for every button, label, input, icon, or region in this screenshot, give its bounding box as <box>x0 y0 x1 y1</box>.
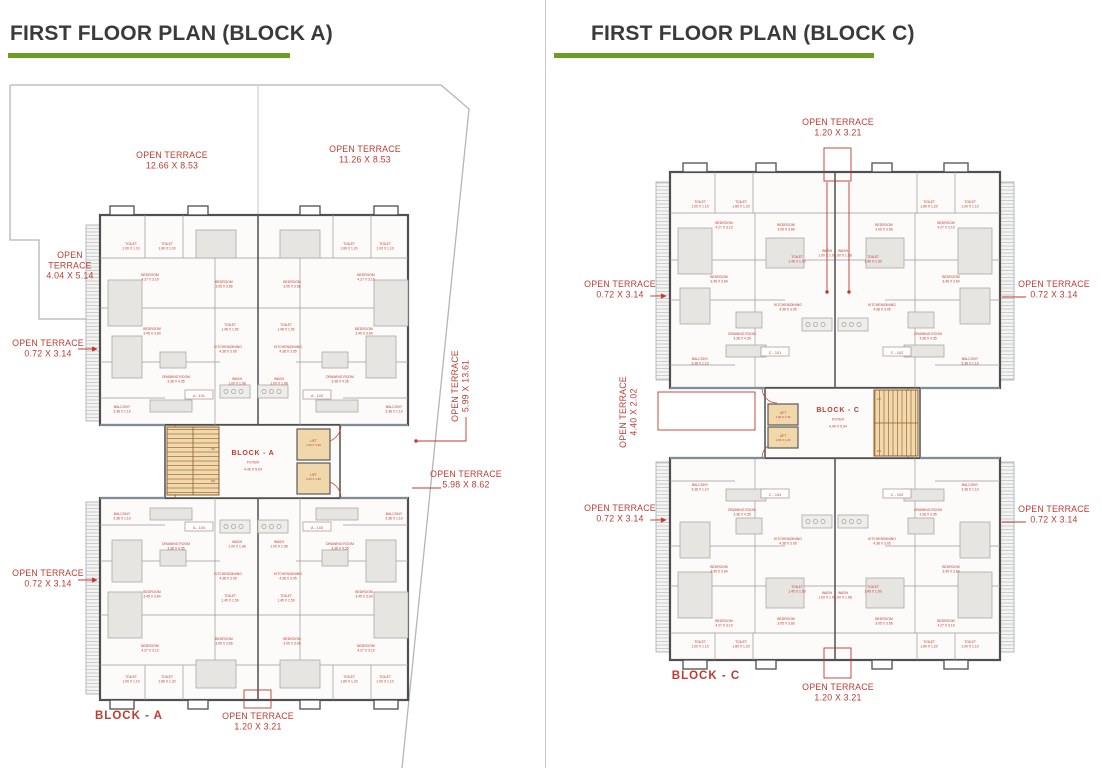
room-label: BEDROOM3.05 X 3.66 <box>215 637 233 645</box>
open-terrace-label: OPEN TERRACE0.72 X 3.14 <box>1018 279 1090 299</box>
open-terrace-label: OPEN TERRACE0.72 X 3.14 <box>12 338 84 358</box>
unit-number: C - 101 <box>769 351 781 355</box>
unit-number: C - 102 <box>891 351 903 355</box>
room-label: BEDROOM3.45 X 3.64 <box>942 565 960 573</box>
room-label: BEDROOM3.45 X 3.64 <box>355 590 373 598</box>
outer-walls <box>100 215 408 700</box>
room-label: BEDROOM3.45 X 3.64 <box>942 275 960 283</box>
open-terrace-label: OPEN TERRACE4.40 X 2.02 <box>618 376 638 448</box>
stair-direction-label: UP <box>877 397 881 401</box>
open-terrace-label: OPEN TERRACE0.72 X 3.14 <box>584 503 656 523</box>
stair-direction-label: DN <box>211 479 215 483</box>
room-label: BEDROOM3.05 X 3.66 <box>215 280 233 288</box>
open-terrace-label: OPEN TERRACE0.72 X 3.14 <box>584 279 656 299</box>
block-label: BLOCK - C <box>672 670 740 682</box>
room-label: BEDROOM3.45 X 3.64 <box>710 275 728 283</box>
terrace-hatch <box>86 225 100 694</box>
room-label: BEDROOM4.27 X 3.19 <box>357 644 375 652</box>
room-label: BALCONY3.38 X 1.10 <box>961 483 979 491</box>
room-label: BEDROOM3.05 X 3.66 <box>283 280 301 288</box>
room-label: BEDROOM4.27 X 3.19 <box>715 619 733 627</box>
open-terrace-label: OPEN TERRACE1.20 X 3.21 <box>802 682 874 702</box>
room-label: BEDROOM3.45 X 3.64 <box>143 590 161 598</box>
room-label: BALCONY3.38 X 1.10 <box>385 512 403 520</box>
open-terrace-label: OPEN TERRACE0.72 X 3.14 <box>12 568 84 588</box>
terrace-outline <box>658 392 755 430</box>
unit-number: C - 104 <box>769 493 781 497</box>
open-terrace-label: OPEN TERRACE12.66 X 8.53 <box>136 150 208 170</box>
leader-dot <box>414 439 417 442</box>
open-terrace-label: OPEN TERRACE1.20 X 3.21 <box>222 711 294 731</box>
unit-number: A - 104 <box>193 526 205 530</box>
room-label: BALCONY3.38 X 1.10 <box>385 405 403 413</box>
room-label: BEDROOM3.45 X 3.64 <box>710 565 728 573</box>
room-label: BEDROOM4.27 X 3.19 <box>937 221 955 229</box>
open-terrace-label: OPEN TERRACE0.72 X 3.14 <box>1018 504 1090 524</box>
room-label: BEDROOM3.05 X 3.66 <box>875 223 893 231</box>
leader-dot <box>847 290 850 293</box>
room-label: BEDROOM3.05 X 3.66 <box>777 617 795 625</box>
room-label: BEDROOM4.27 X 3.19 <box>141 273 159 281</box>
room-label: BEDROOM3.45 X 3.64 <box>143 327 161 335</box>
open-terrace-label: OPEN TERRACE11.26 X 8.53 <box>329 144 401 164</box>
block-label: BLOCK - A <box>95 710 163 722</box>
room-label: BEDROOM3.05 X 3.66 <box>283 637 301 645</box>
unit-number: C - 103 <box>891 493 903 497</box>
leader-dot <box>825 290 828 293</box>
room-label: BEDROOM3.45 X 3.64 <box>355 327 373 335</box>
stair-direction-label: DN <box>877 449 881 453</box>
block-a-plan <box>86 206 408 709</box>
room-label: BALCONY3.38 X 1.10 <box>961 357 979 365</box>
unit-number: A - 103 <box>311 526 323 530</box>
room-label: BEDROOM3.05 X 3.66 <box>777 223 795 231</box>
room-label: BALCONY3.38 X 1.10 <box>691 483 709 491</box>
floor-plan-canvas: OPEN TERRACE12.66 X 8.53OPEN TERRACE11.2… <box>0 0 1102 768</box>
open-terrace-label: OPEN TERRACE5.98 X 8.62 <box>430 469 502 489</box>
room-label: BALCONY3.38 X 1.10 <box>113 405 131 413</box>
block-c-plan <box>656 163 1014 669</box>
stair-direction-label: UP <box>211 447 215 451</box>
room-label: BEDROOM4.27 X 3.19 <box>937 619 955 627</box>
page-root: FIRST FLOOR PLAN (BLOCK A) FIRST FLOOR P… <box>0 0 1102 768</box>
open-terrace-label: OPEN TERRACE5.99 X 13.61 <box>450 350 470 422</box>
room-label: BEDROOM4.27 X 3.19 <box>715 221 733 229</box>
unit-number: A - 102 <box>311 394 323 398</box>
room-label: BALCONY3.38 X 1.10 <box>691 357 709 365</box>
open-terrace-label: OPEN TERRACE1.20 X 3.21 <box>802 117 874 137</box>
room-label: BEDROOM4.27 X 3.19 <box>357 273 375 281</box>
room-label: BEDROOM3.05 X 3.66 <box>875 617 893 625</box>
unit-number: A - 101 <box>193 394 205 398</box>
room-label: BALCONY3.38 X 1.10 <box>113 512 131 520</box>
room-label: BEDROOM4.27 X 3.19 <box>141 644 159 652</box>
